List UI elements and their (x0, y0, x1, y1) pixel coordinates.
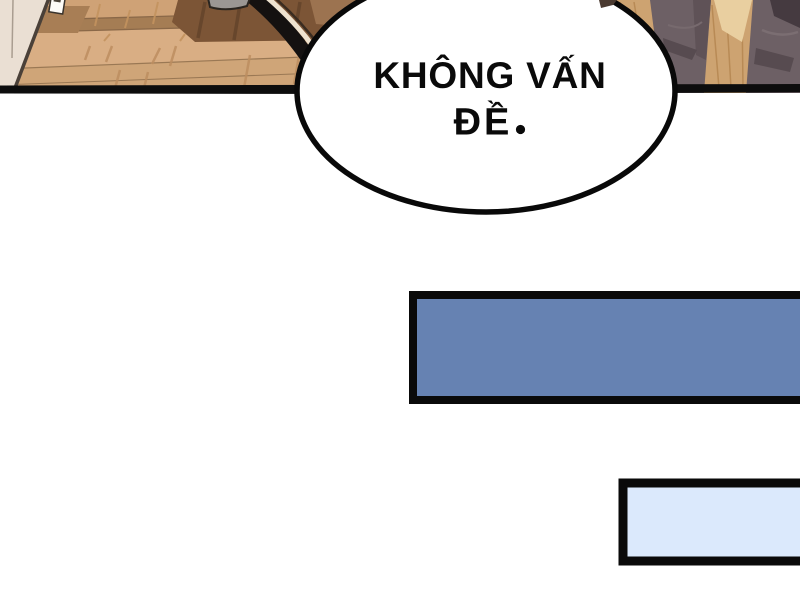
svg-text:ĐỀ: ĐỀ (454, 100, 513, 144)
svg-text:KHÔNG VẤN: KHÔNG VẤN (373, 54, 606, 96)
